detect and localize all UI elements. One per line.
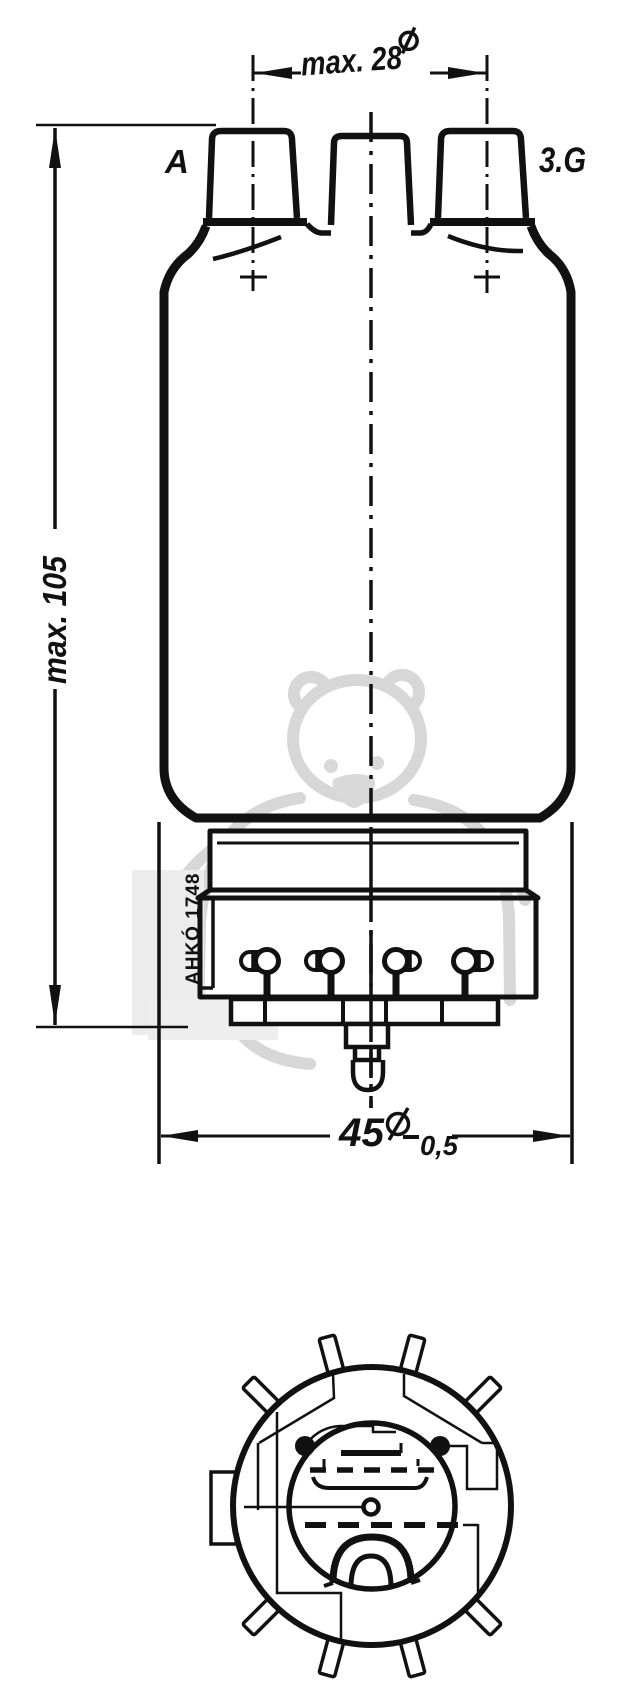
svg-text:45: 45 xyxy=(338,1111,385,1155)
svg-text:A: A xyxy=(164,143,189,180)
svg-text:0,5: 0,5 xyxy=(420,1130,458,1161)
svg-text:max. 28: max. 28 xyxy=(300,38,404,82)
svg-text:3.G: 3.G xyxy=(539,141,586,180)
svg-text:max. 105: max. 105 xyxy=(36,555,73,684)
svg-text:AHKÓ 1748: AHKÓ 1748 xyxy=(182,873,204,986)
